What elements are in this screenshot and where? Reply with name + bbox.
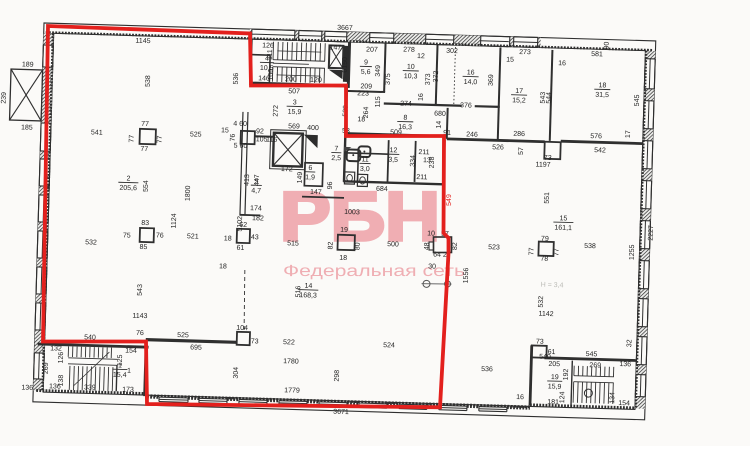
svg-text:536: 536 (233, 73, 240, 85)
svg-text:373: 373 (425, 73, 432, 85)
svg-text:126: 126 (58, 352, 65, 364)
svg-text:116: 116 (266, 137, 277, 144)
svg-text:15,9: 15,9 (548, 383, 562, 390)
svg-text:126: 126 (262, 42, 274, 49)
svg-text:304: 304 (233, 367, 240, 379)
svg-text:173: 173 (122, 386, 134, 393)
svg-text:12: 12 (389, 147, 397, 154)
svg-text:543: 543 (137, 284, 144, 296)
svg-text:76: 76 (230, 134, 237, 142)
svg-text:581: 581 (591, 51, 603, 58)
svg-text:526: 526 (492, 144, 504, 151)
svg-text:120: 120 (310, 77, 322, 84)
svg-text:73: 73 (251, 338, 259, 345)
svg-text:3,0: 3,0 (360, 166, 370, 173)
svg-text:147: 147 (329, 44, 341, 51)
svg-text:15: 15 (559, 215, 567, 222)
svg-text:2: 2 (126, 175, 130, 182)
svg-text:182: 182 (252, 215, 264, 222)
svg-text:132: 132 (50, 345, 62, 352)
svg-text:278: 278 (403, 47, 415, 54)
svg-text:104: 104 (236, 325, 248, 332)
svg-text:1556: 1556 (463, 268, 470, 284)
svg-text:273: 273 (519, 49, 531, 56)
svg-text:16: 16 (558, 60, 566, 67)
svg-text:17: 17 (625, 130, 632, 138)
svg-text:211: 211 (418, 149, 429, 156)
svg-text:1003: 1003 (344, 209, 360, 216)
svg-text:90: 90 (603, 41, 610, 49)
svg-text:524: 524 (383, 342, 395, 349)
svg-text:551: 551 (544, 192, 551, 204)
svg-text:15,9: 15,9 (288, 109, 302, 116)
svg-text:15,4: 15,4 (113, 372, 127, 379)
svg-text:185: 185 (21, 124, 33, 131)
svg-text:269: 269 (589, 362, 601, 369)
svg-text:15: 15 (506, 57, 514, 64)
svg-text:77: 77 (528, 247, 535, 255)
svg-text:125: 125 (117, 354, 124, 366)
svg-text:19: 19 (551, 374, 559, 381)
svg-text:3: 3 (293, 99, 297, 106)
svg-text:11: 11 (361, 156, 369, 163)
svg-text:14: 14 (304, 283, 312, 290)
svg-text:334: 334 (410, 155, 417, 167)
svg-text:3667: 3667 (337, 25, 353, 32)
svg-text:1: 1 (127, 368, 131, 375)
svg-text:536: 536 (481, 366, 493, 373)
svg-text:239: 239 (1, 92, 8, 104)
svg-text:207: 207 (366, 46, 378, 53)
svg-text:76: 76 (136, 330, 144, 337)
svg-text:172: 172 (281, 166, 293, 173)
svg-text:264: 264 (363, 106, 370, 118)
svg-text:538: 538 (584, 243, 596, 250)
svg-text:154: 154 (618, 400, 630, 407)
svg-text:532: 532 (85, 239, 97, 246)
svg-text:2,5: 2,5 (331, 155, 341, 162)
svg-text:1780: 1780 (283, 358, 299, 365)
svg-text:17: 17 (515, 88, 523, 95)
svg-text:136: 136 (49, 383, 61, 390)
svg-text:525: 525 (190, 131, 202, 138)
svg-text:85: 85 (139, 244, 147, 251)
svg-text:376: 376 (460, 102, 472, 109)
svg-text:349: 349 (375, 65, 382, 77)
svg-text:80: 80 (354, 242, 361, 250)
svg-text:542: 542 (594, 147, 606, 154)
svg-text:92: 92 (256, 128, 264, 135)
svg-text:32: 32 (626, 339, 633, 347)
svg-text:9: 9 (364, 59, 368, 66)
svg-text:1142: 1142 (538, 311, 553, 318)
svg-text:540: 540 (539, 354, 551, 361)
svg-text:545: 545 (634, 94, 641, 106)
svg-text:192: 192 (563, 368, 570, 380)
svg-text:549: 549 (446, 194, 453, 206)
svg-text:525: 525 (177, 332, 189, 339)
svg-text:48: 48 (424, 242, 431, 250)
svg-text:544: 544 (546, 92, 553, 104)
svg-text:4,7: 4,7 (251, 188, 261, 195)
svg-text:147: 147 (310, 189, 322, 196)
svg-text:569: 569 (288, 123, 300, 130)
svg-text:134: 134 (609, 392, 616, 404)
svg-text:522: 522 (283, 339, 295, 346)
svg-text:16: 16 (467, 69, 475, 76)
svg-text:400: 400 (307, 125, 319, 132)
svg-text:1143: 1143 (132, 313, 147, 320)
svg-text:200: 200 (285, 76, 297, 83)
svg-text:174: 174 (250, 205, 262, 212)
svg-text:161,1: 161,1 (554, 225, 572, 233)
svg-text:19: 19 (340, 227, 348, 234)
svg-text:77: 77 (140, 146, 148, 153)
svg-text:43: 43 (251, 234, 259, 241)
svg-text:14: 14 (436, 121, 443, 129)
svg-text:4 60: 4 60 (233, 121, 247, 128)
svg-text:521: 521 (187, 233, 199, 240)
svg-text:Н = 3,4: Н = 3,4 (541, 282, 564, 290)
svg-text:136: 136 (619, 361, 631, 368)
svg-text:13: 13 (423, 157, 431, 164)
svg-text:14,0: 14,0 (464, 79, 478, 86)
svg-text:96: 96 (327, 181, 334, 189)
svg-text:286: 286 (513, 131, 525, 138)
svg-text:5 60: 5 60 (234, 143, 248, 150)
svg-text:77: 77 (129, 135, 136, 143)
svg-text:6: 6 (308, 165, 312, 172)
svg-text:375: 375 (385, 73, 392, 85)
svg-text:79: 79 (541, 236, 549, 243)
svg-text:7: 7 (334, 146, 338, 153)
svg-text:10: 10 (407, 64, 415, 71)
svg-text:83: 83 (141, 220, 149, 227)
svg-text:523: 523 (488, 244, 500, 251)
svg-text:18: 18 (598, 82, 606, 89)
svg-text:515: 515 (287, 240, 299, 247)
svg-text:18: 18 (224, 235, 232, 242)
svg-text:372: 372 (433, 70, 440, 82)
svg-text:545: 545 (586, 351, 598, 358)
svg-text:3671: 3671 (333, 409, 349, 416)
svg-text:18: 18 (339, 255, 347, 262)
svg-text:413: 413 (244, 174, 251, 186)
svg-text:339: 339 (84, 384, 96, 391)
svg-text:205,6: 205,6 (119, 185, 137, 193)
svg-text:10,3: 10,3 (404, 73, 418, 80)
svg-text:684: 684 (376, 186, 388, 193)
svg-text:76: 76 (156, 232, 164, 239)
svg-text:1255: 1255 (629, 244, 636, 260)
svg-text:269: 269 (43, 362, 50, 374)
svg-text:12: 12 (417, 53, 425, 60)
svg-text:369: 369 (488, 74, 495, 86)
svg-text:3,5: 3,5 (388, 157, 398, 164)
svg-text:246: 246 (466, 131, 478, 138)
svg-text:73: 73 (536, 339, 544, 346)
svg-text:1779: 1779 (284, 387, 300, 394)
svg-text:211: 211 (416, 174, 427, 181)
svg-text:82: 82 (452, 242, 459, 250)
svg-text:538: 538 (145, 75, 152, 87)
svg-text:136: 136 (21, 384, 33, 391)
svg-text:149: 149 (297, 172, 304, 184)
svg-text:82: 82 (327, 241, 334, 249)
svg-text:100: 100 (268, 69, 275, 81)
svg-text:541: 541 (91, 129, 103, 136)
svg-text:181: 181 (547, 399, 559, 406)
svg-text:532: 532 (538, 296, 545, 308)
svg-text:154: 154 (125, 348, 137, 355)
svg-text:447: 447 (254, 174, 261, 186)
svg-text:6150: 6150 (342, 57, 349, 73)
svg-text:205: 205 (548, 361, 560, 368)
svg-text:57: 57 (518, 147, 525, 155)
svg-text:189: 189 (22, 61, 34, 68)
svg-text:223: 223 (357, 90, 369, 97)
svg-text:115: 115 (375, 96, 382, 107)
svg-text:77: 77 (141, 121, 149, 128)
svg-text:516: 516 (295, 286, 302, 298)
svg-text:78: 78 (540, 256, 548, 263)
svg-text:15,2: 15,2 (512, 97, 526, 104)
svg-text:8: 8 (403, 115, 407, 122)
svg-text:61: 61 (236, 245, 244, 252)
svg-text:2227: 2227 (648, 225, 655, 241)
svg-text:15: 15 (221, 127, 229, 134)
svg-text:1197: 1197 (535, 161, 550, 168)
svg-text:554: 554 (143, 180, 150, 192)
svg-text:77: 77 (553, 248, 560, 256)
svg-text:298: 298 (334, 370, 341, 382)
svg-text:1124: 1124 (171, 213, 178, 228)
svg-text:274: 274 (400, 100, 412, 107)
svg-text:5,6: 5,6 (361, 69, 371, 76)
svg-text:507: 507 (288, 88, 300, 95)
svg-text:31,5: 31,5 (595, 92, 609, 99)
svg-text:272: 272 (273, 105, 280, 117)
svg-text:16: 16 (516, 394, 524, 401)
svg-text:576: 576 (590, 133, 602, 140)
svg-text:30: 30 (428, 263, 436, 270)
svg-text:1145: 1145 (135, 38, 150, 45)
svg-text:111: 111 (267, 49, 274, 60)
svg-text:75: 75 (123, 232, 131, 239)
svg-text:18: 18 (219, 263, 227, 270)
svg-text:500: 500 (387, 241, 399, 248)
svg-text:680: 680 (434, 110, 446, 117)
svg-text:Федеральная сеть: Федеральная сеть (283, 263, 465, 280)
svg-text:124: 124 (559, 391, 566, 403)
svg-text:1,9: 1,9 (305, 174, 315, 181)
svg-text:16: 16 (418, 93, 425, 101)
svg-text:5102: 5102 (237, 216, 244, 232)
svg-text:77: 77 (157, 135, 164, 143)
svg-text:302: 302 (446, 48, 458, 55)
svg-text:695: 695 (190, 344, 202, 351)
svg-text:1800: 1800 (185, 185, 192, 201)
